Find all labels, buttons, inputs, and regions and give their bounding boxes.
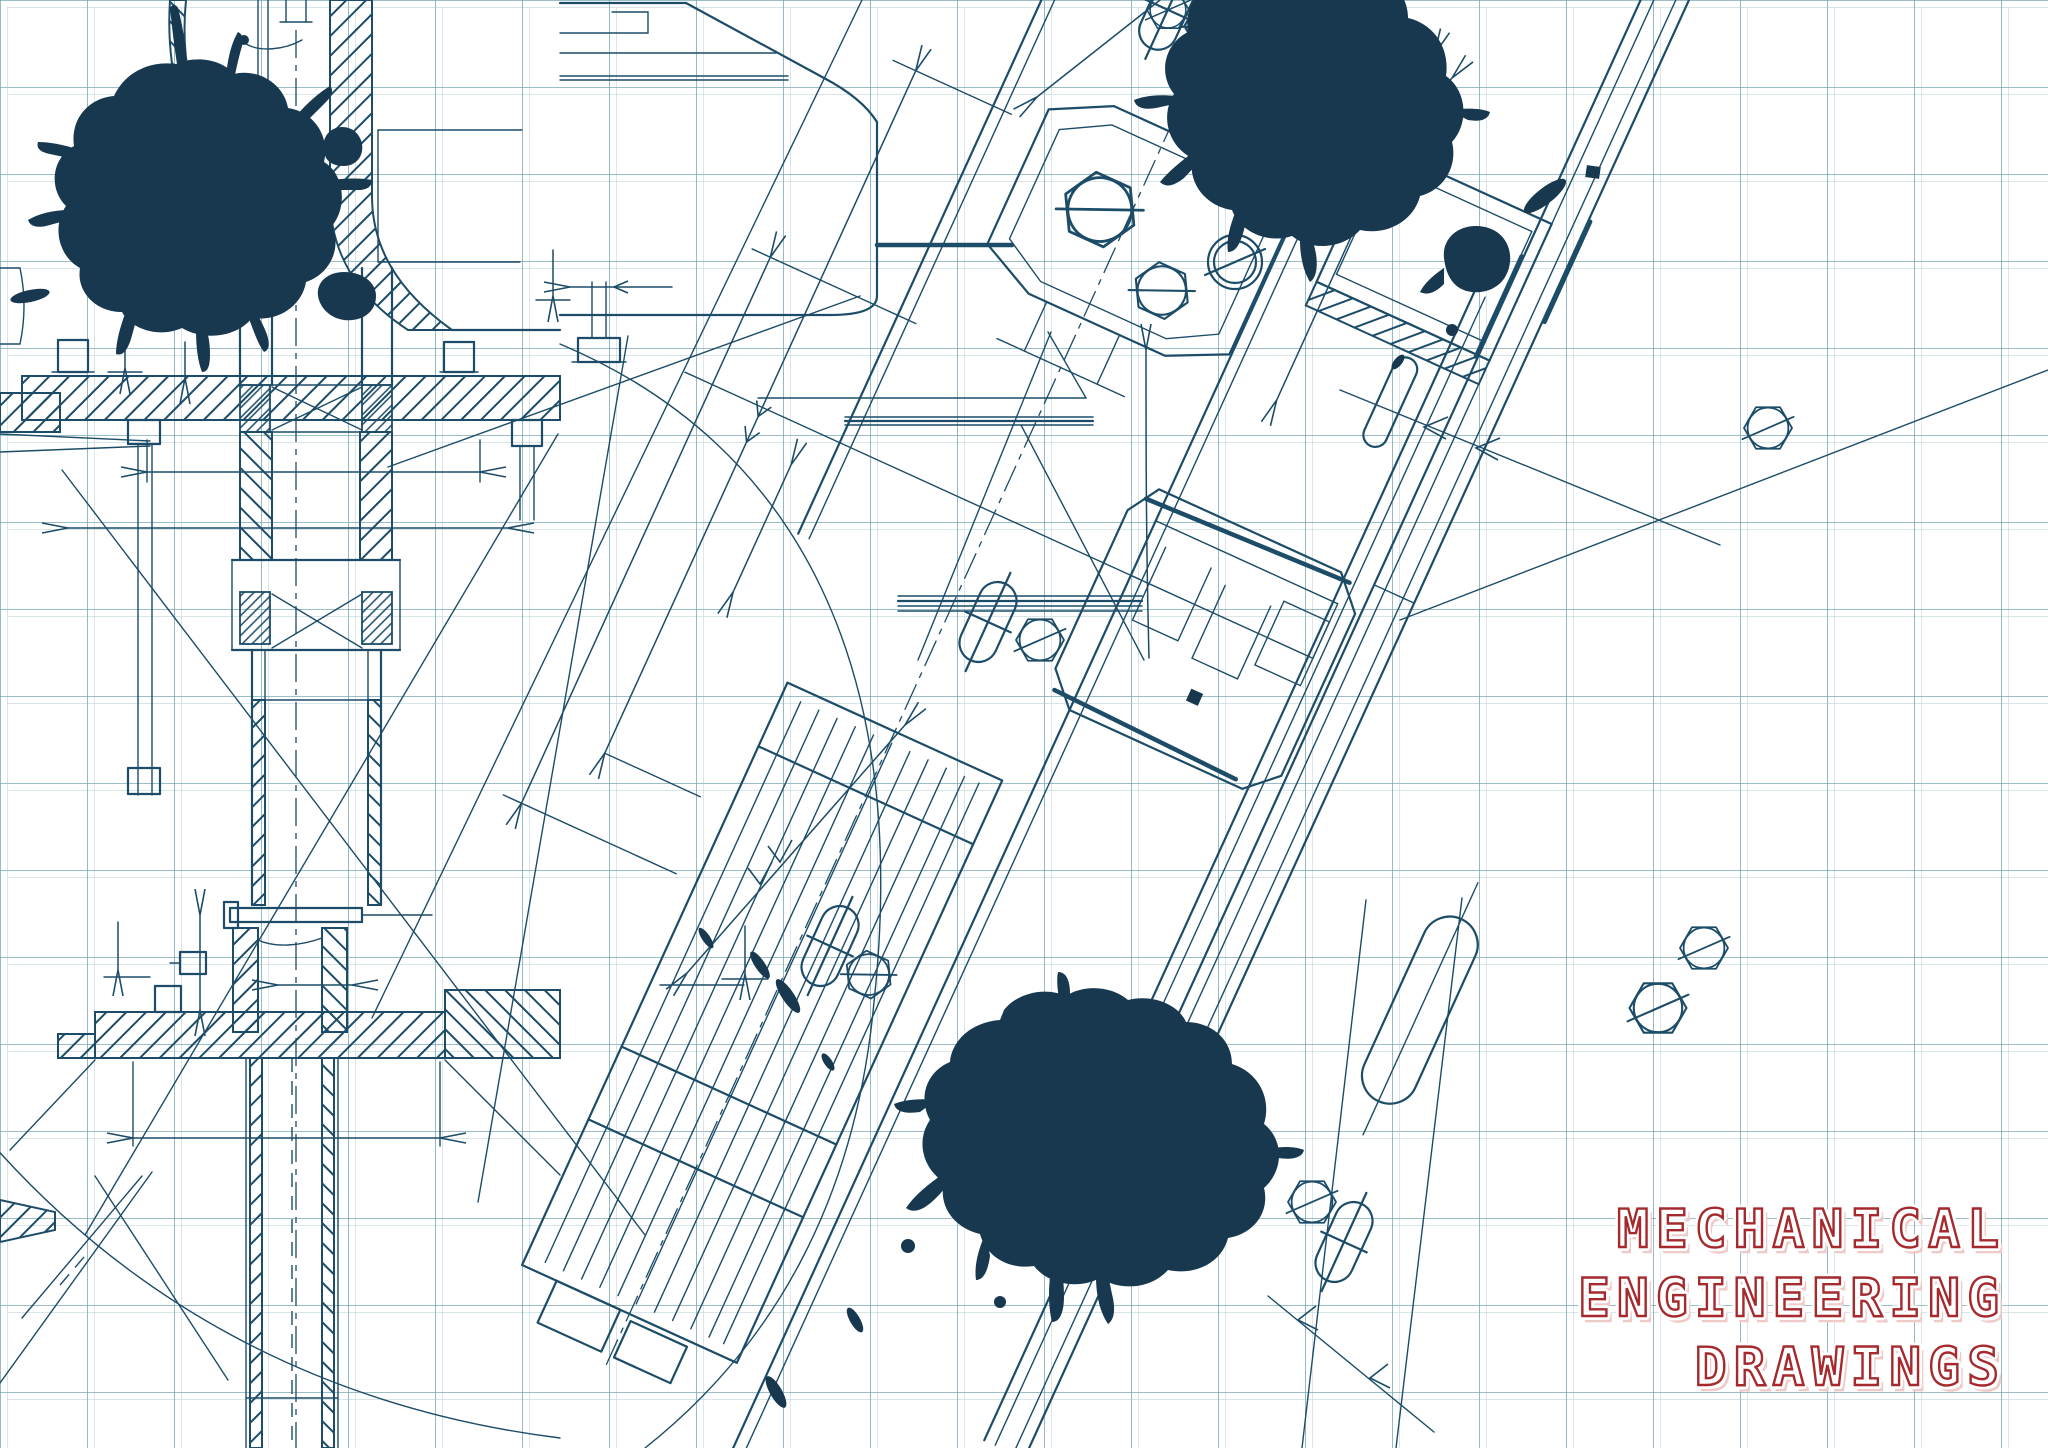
- blueprint-page: MECHANICAL ENGINEERING DRAWINGS MECHANIC…: [0, 0, 2048, 1448]
- title-line-3: DRAWINGS: [1695, 1337, 2006, 1398]
- title-line-2: ENGINEERING: [1578, 1268, 2006, 1329]
- title-line-1: MECHANICAL: [1617, 1199, 2006, 1260]
- blueprint-scene: MECHANICAL ENGINEERING DRAWINGS MECHANIC…: [0, 0, 2048, 1448]
